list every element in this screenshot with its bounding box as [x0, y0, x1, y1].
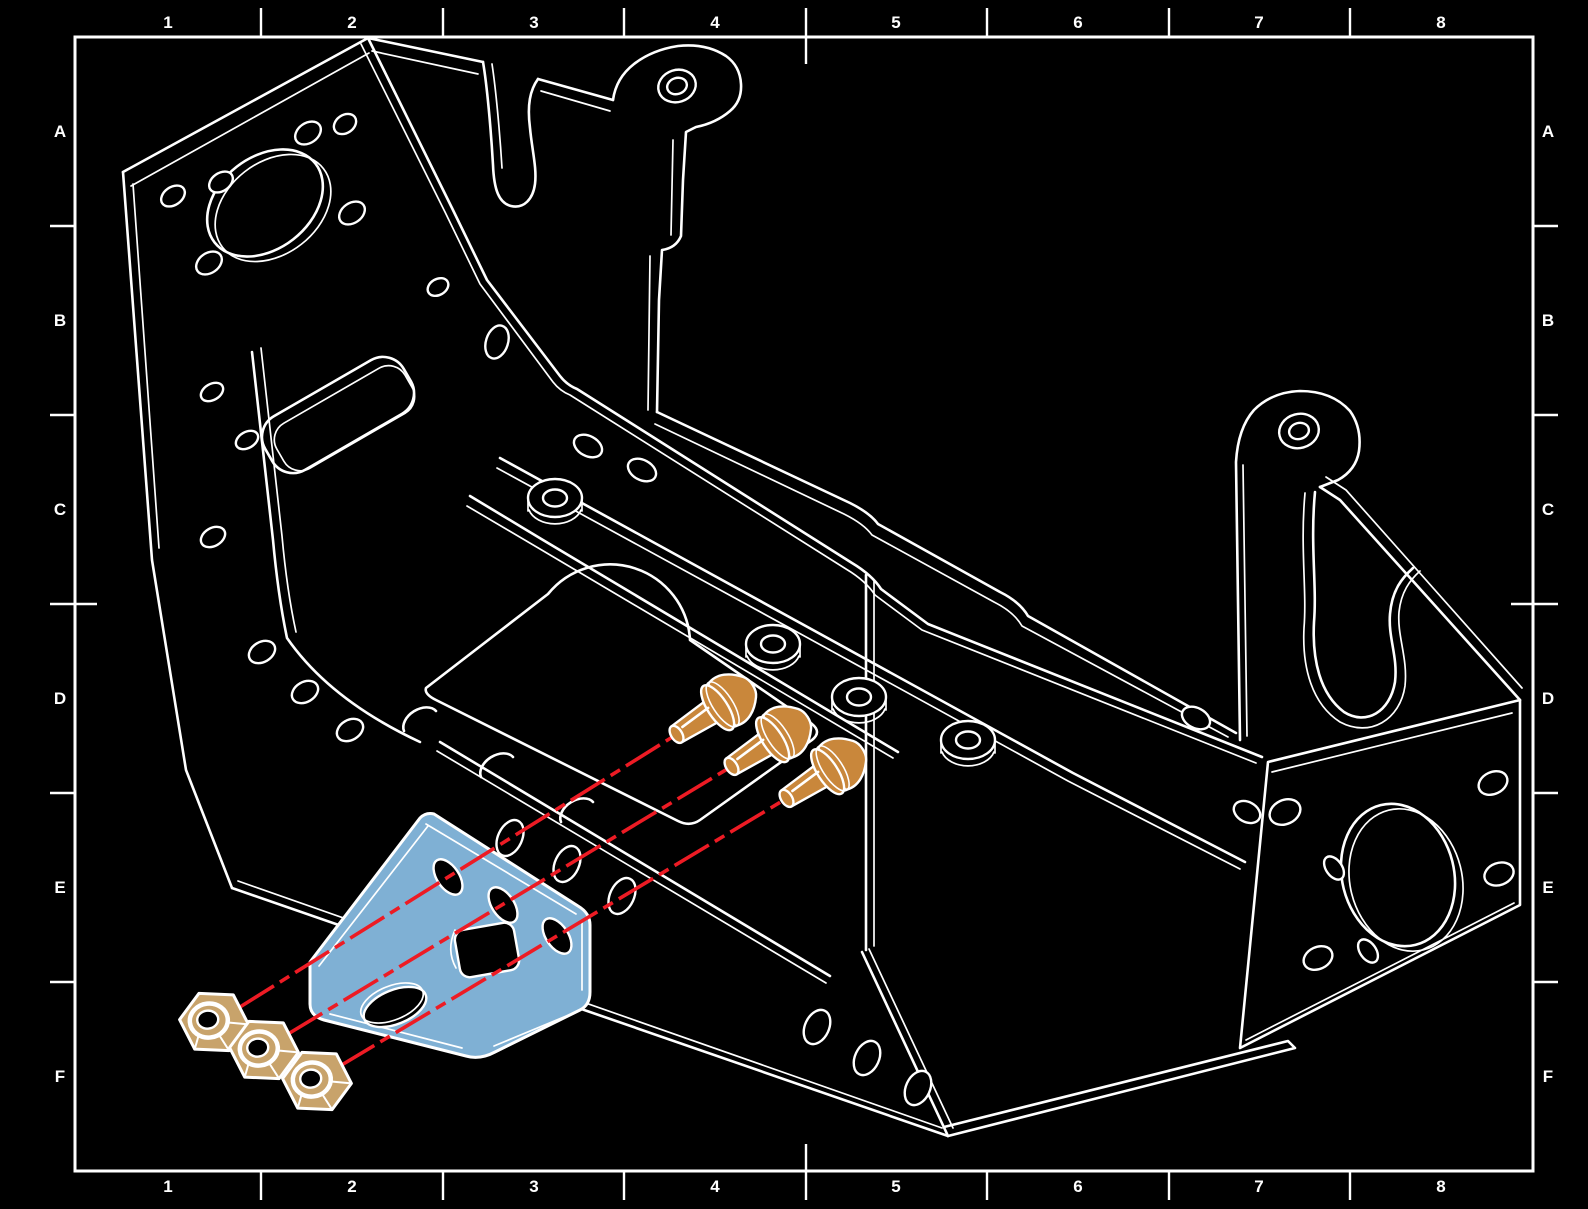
grid-label: 5: [891, 13, 900, 32]
grid-label: A: [54, 122, 66, 141]
rear-bracket: [1236, 391, 1522, 740]
grid-label: F: [55, 1067, 65, 1086]
grid-label: B: [54, 311, 66, 330]
grid-label: 4: [710, 13, 720, 32]
grid-label: 3: [529, 13, 538, 32]
grid-label: 7: [1254, 13, 1263, 32]
grid-label: D: [54, 689, 66, 708]
grid-label: F: [1543, 1067, 1553, 1086]
grid-label: 7: [1254, 1177, 1263, 1196]
grid-label: C: [54, 500, 66, 519]
grid-label: 4: [710, 1177, 720, 1196]
grid-label: 1: [163, 1177, 172, 1196]
grid-label: 1: [163, 13, 172, 32]
grid-label: 2: [347, 1177, 356, 1196]
grid-label: 6: [1073, 13, 1082, 32]
grid-label: E: [1542, 878, 1553, 897]
grid-label: 6: [1073, 1177, 1082, 1196]
grid-reference-labels: 1 2 3 4 5 6 7 8 1 2 3 4 5 6 7 8 A B C D …: [54, 13, 1554, 1196]
right-end-plate: [1240, 700, 1520, 1048]
grid-label: 3: [529, 1177, 538, 1196]
grid-label: 2: [347, 13, 356, 32]
grid-label: 5: [891, 1177, 900, 1196]
grid-label: B: [1542, 311, 1554, 330]
cad-drawing-canvas: 1 2 3 4 5 6 7 8 1 2 3 4 5 6 7 8 A B C D …: [0, 0, 1588, 1209]
grid-label: D: [1542, 689, 1554, 708]
grid-label: C: [1542, 500, 1554, 519]
grid-label: 8: [1436, 13, 1445, 32]
exploded-assembly-drawing: 1 2 3 4 5 6 7 8 1 2 3 4 5 6 7 8 A B C D …: [0, 0, 1588, 1209]
grid-label: A: [1542, 122, 1554, 141]
grid-label: E: [54, 878, 65, 897]
grid-label: 8: [1436, 1177, 1445, 1196]
